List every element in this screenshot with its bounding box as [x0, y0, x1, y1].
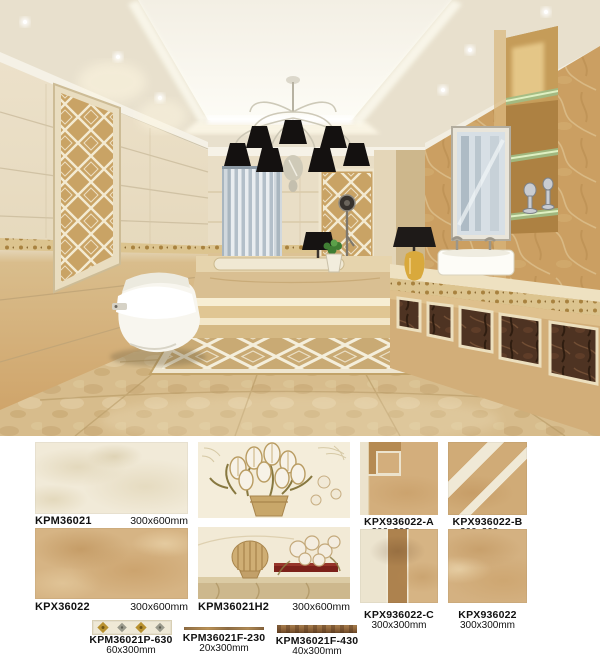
- product-code: KPX36022: [35, 601, 90, 613]
- tile-label: KPX936022-C 300x300mm: [348, 610, 450, 632]
- tile-swatch-kpx936022-c: [360, 529, 438, 603]
- deck-urn: [326, 254, 342, 272]
- lamp-vase-base: [404, 251, 424, 281]
- ledge: [198, 577, 350, 583]
- product-size: 300x300mm: [348, 621, 450, 632]
- glass-shelf-niche: [506, 26, 558, 234]
- tile-swatch-kpx936022-b: [448, 442, 527, 515]
- damask-motifs: [93, 621, 171, 634]
- border-strip-kpm36021f-430: [277, 625, 357, 633]
- tile-label: KPM36021H2 300x600mm: [198, 601, 350, 613]
- product-size: 300x600mm: [292, 601, 350, 613]
- left-wall-decor-panel: [54, 84, 120, 292]
- tile-swatch-kpm36021: [35, 442, 188, 514]
- mirror: [452, 127, 510, 240]
- vase: [250, 496, 288, 516]
- tile-swatch-tulip-decor: [198, 442, 350, 518]
- product-size: 40x300mm: [257, 647, 377, 656]
- product-code: KPM36021: [35, 515, 92, 527]
- bathroom-scene-render: [0, 0, 600, 436]
- product-size: 300x300mm: [436, 621, 539, 632]
- toilet-control-panel: [112, 303, 127, 310]
- basket-decor-art: [198, 527, 350, 599]
- tile-swatch-kpx936022-a: [360, 442, 438, 515]
- tile-label: KPX36022 300x600mm: [35, 601, 188, 613]
- tile-catalog-page: KPM36021 300x600mm: [0, 0, 600, 656]
- border-strip-kpm36021p-630: [92, 620, 172, 635]
- tile-label: KPM36021 300x600mm: [35, 515, 188, 527]
- tile-label: KPX936022 300x300mm: [436, 610, 539, 632]
- toilet: [110, 272, 206, 366]
- window-curtain: [222, 166, 282, 268]
- tile-swatch-basket-decor: [198, 527, 350, 599]
- tulip-decor-art: [198, 442, 350, 518]
- product-code: KPM36021H2: [198, 601, 269, 613]
- product-size: 300x600mm: [130, 601, 188, 613]
- tile-swatch-kpx36022: [35, 528, 188, 599]
- strip-label: KPM36021F-430 40x300mm: [257, 636, 377, 656]
- product-size: 300x600mm: [130, 515, 188, 527]
- tile-swatch-kpx936022: [448, 529, 527, 603]
- border-strip-kpm36021f-230: [184, 627, 264, 630]
- corner-block-design: [360, 442, 438, 515]
